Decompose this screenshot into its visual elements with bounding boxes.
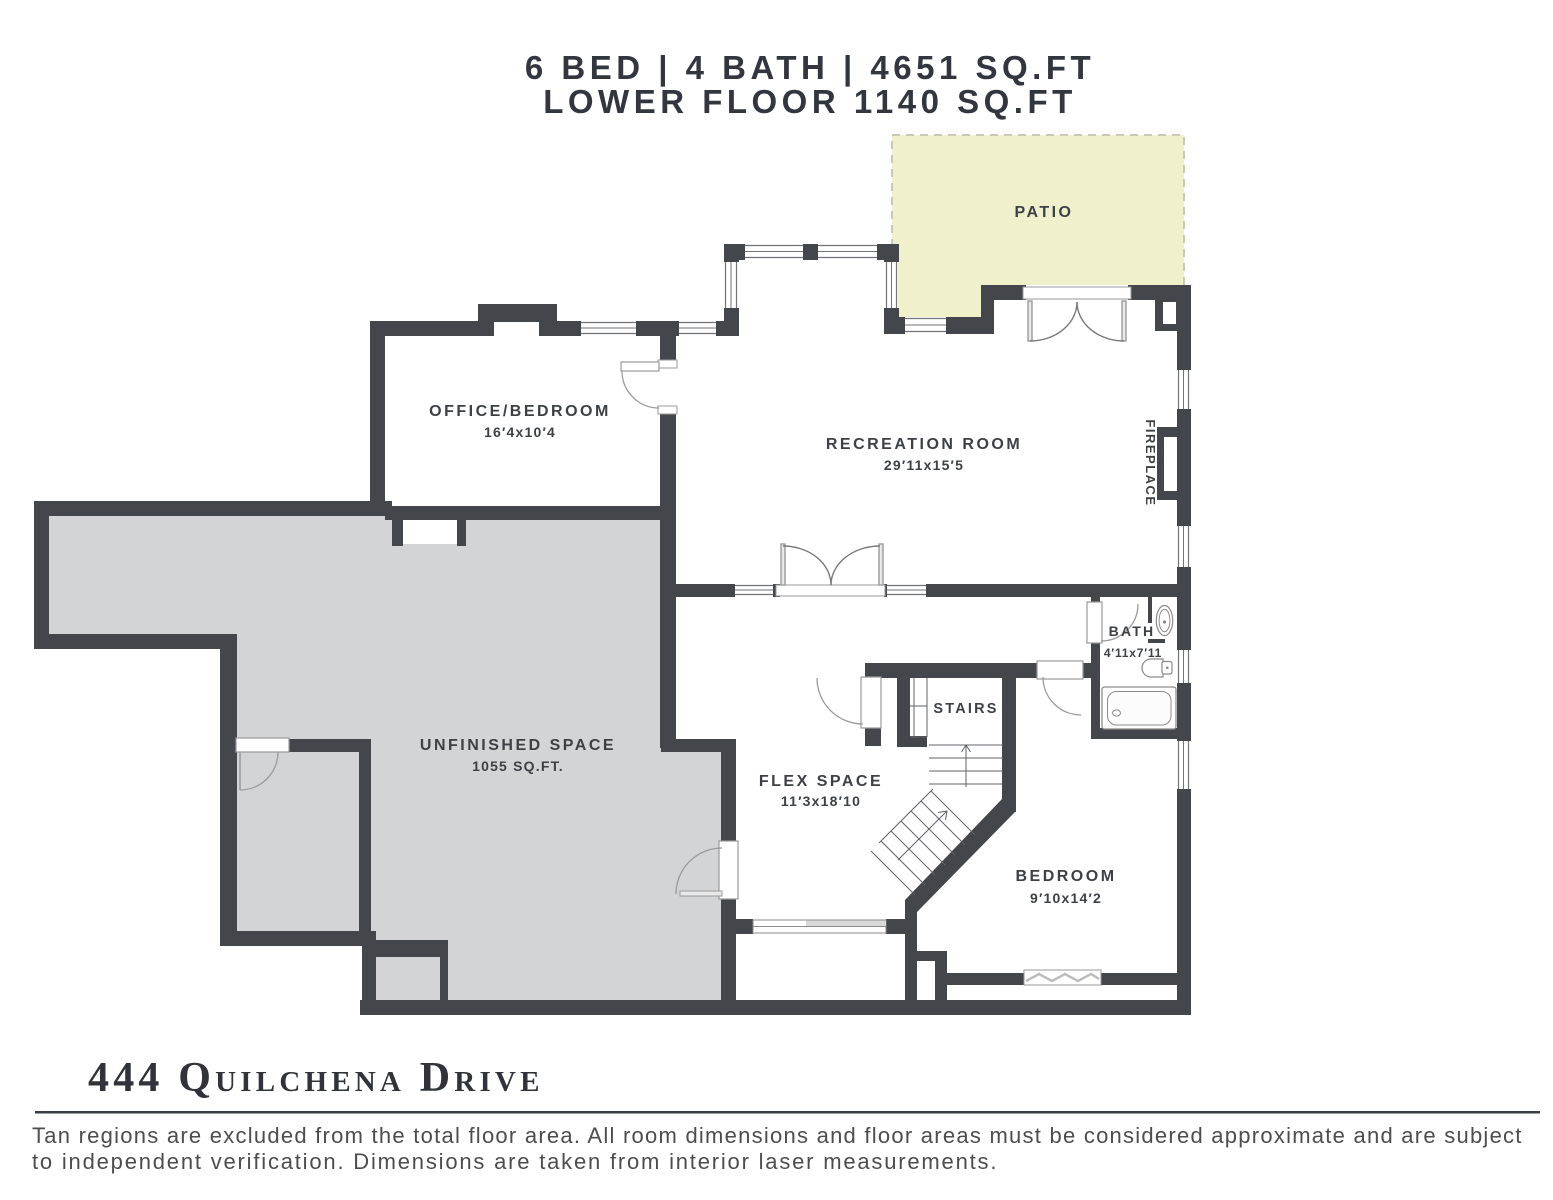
- svg-text:UNFINISHED SPACE: UNFINISHED SPACE: [420, 737, 616, 754]
- svg-text:RECREATION ROOM: RECREATION ROOM: [826, 436, 1022, 453]
- svg-text:OFFICE/BEDROOM: OFFICE/BEDROOM: [429, 403, 611, 420]
- svg-text:Tan regions are excluded from: Tan regions are excluded from the total …: [32, 1123, 1523, 1148]
- svg-text:LOWER FLOOR 1140 SQ.FT: LOWER FLOOR 1140 SQ.FT: [543, 83, 1077, 120]
- svg-text:29′11x15′5: 29′11x15′5: [884, 457, 964, 473]
- svg-text:444 Quilchena Drive: 444 Quilchena Drive: [88, 1055, 544, 1101]
- svg-text:9′10x14′2: 9′10x14′2: [1030, 890, 1102, 906]
- svg-text:FIREPLACE: FIREPLACE: [1143, 419, 1158, 506]
- svg-text:1055 SQ.FT.: 1055 SQ.FT.: [472, 758, 564, 774]
- svg-text:11′3x18′10: 11′3x18′10: [781, 793, 861, 809]
- svg-text:FLEX SPACE: FLEX SPACE: [759, 773, 883, 790]
- svg-text:BEDROOM: BEDROOM: [1015, 868, 1116, 885]
- svg-text:PATIO: PATIO: [1014, 204, 1073, 221]
- svg-text:4′11x7′11: 4′11x7′11: [1104, 646, 1162, 660]
- svg-text:BATH: BATH: [1109, 623, 1156, 639]
- svg-text:6 BED | 4 BATH | 4651 SQ.FT: 6 BED | 4 BATH | 4651 SQ.FT: [525, 49, 1095, 86]
- svg-text:16′4x10′4: 16′4x10′4: [484, 424, 556, 440]
- svg-text:to independent verification. D: to independent verification. Dimensions …: [32, 1149, 998, 1174]
- svg-text:STAIRS: STAIRS: [933, 701, 998, 717]
